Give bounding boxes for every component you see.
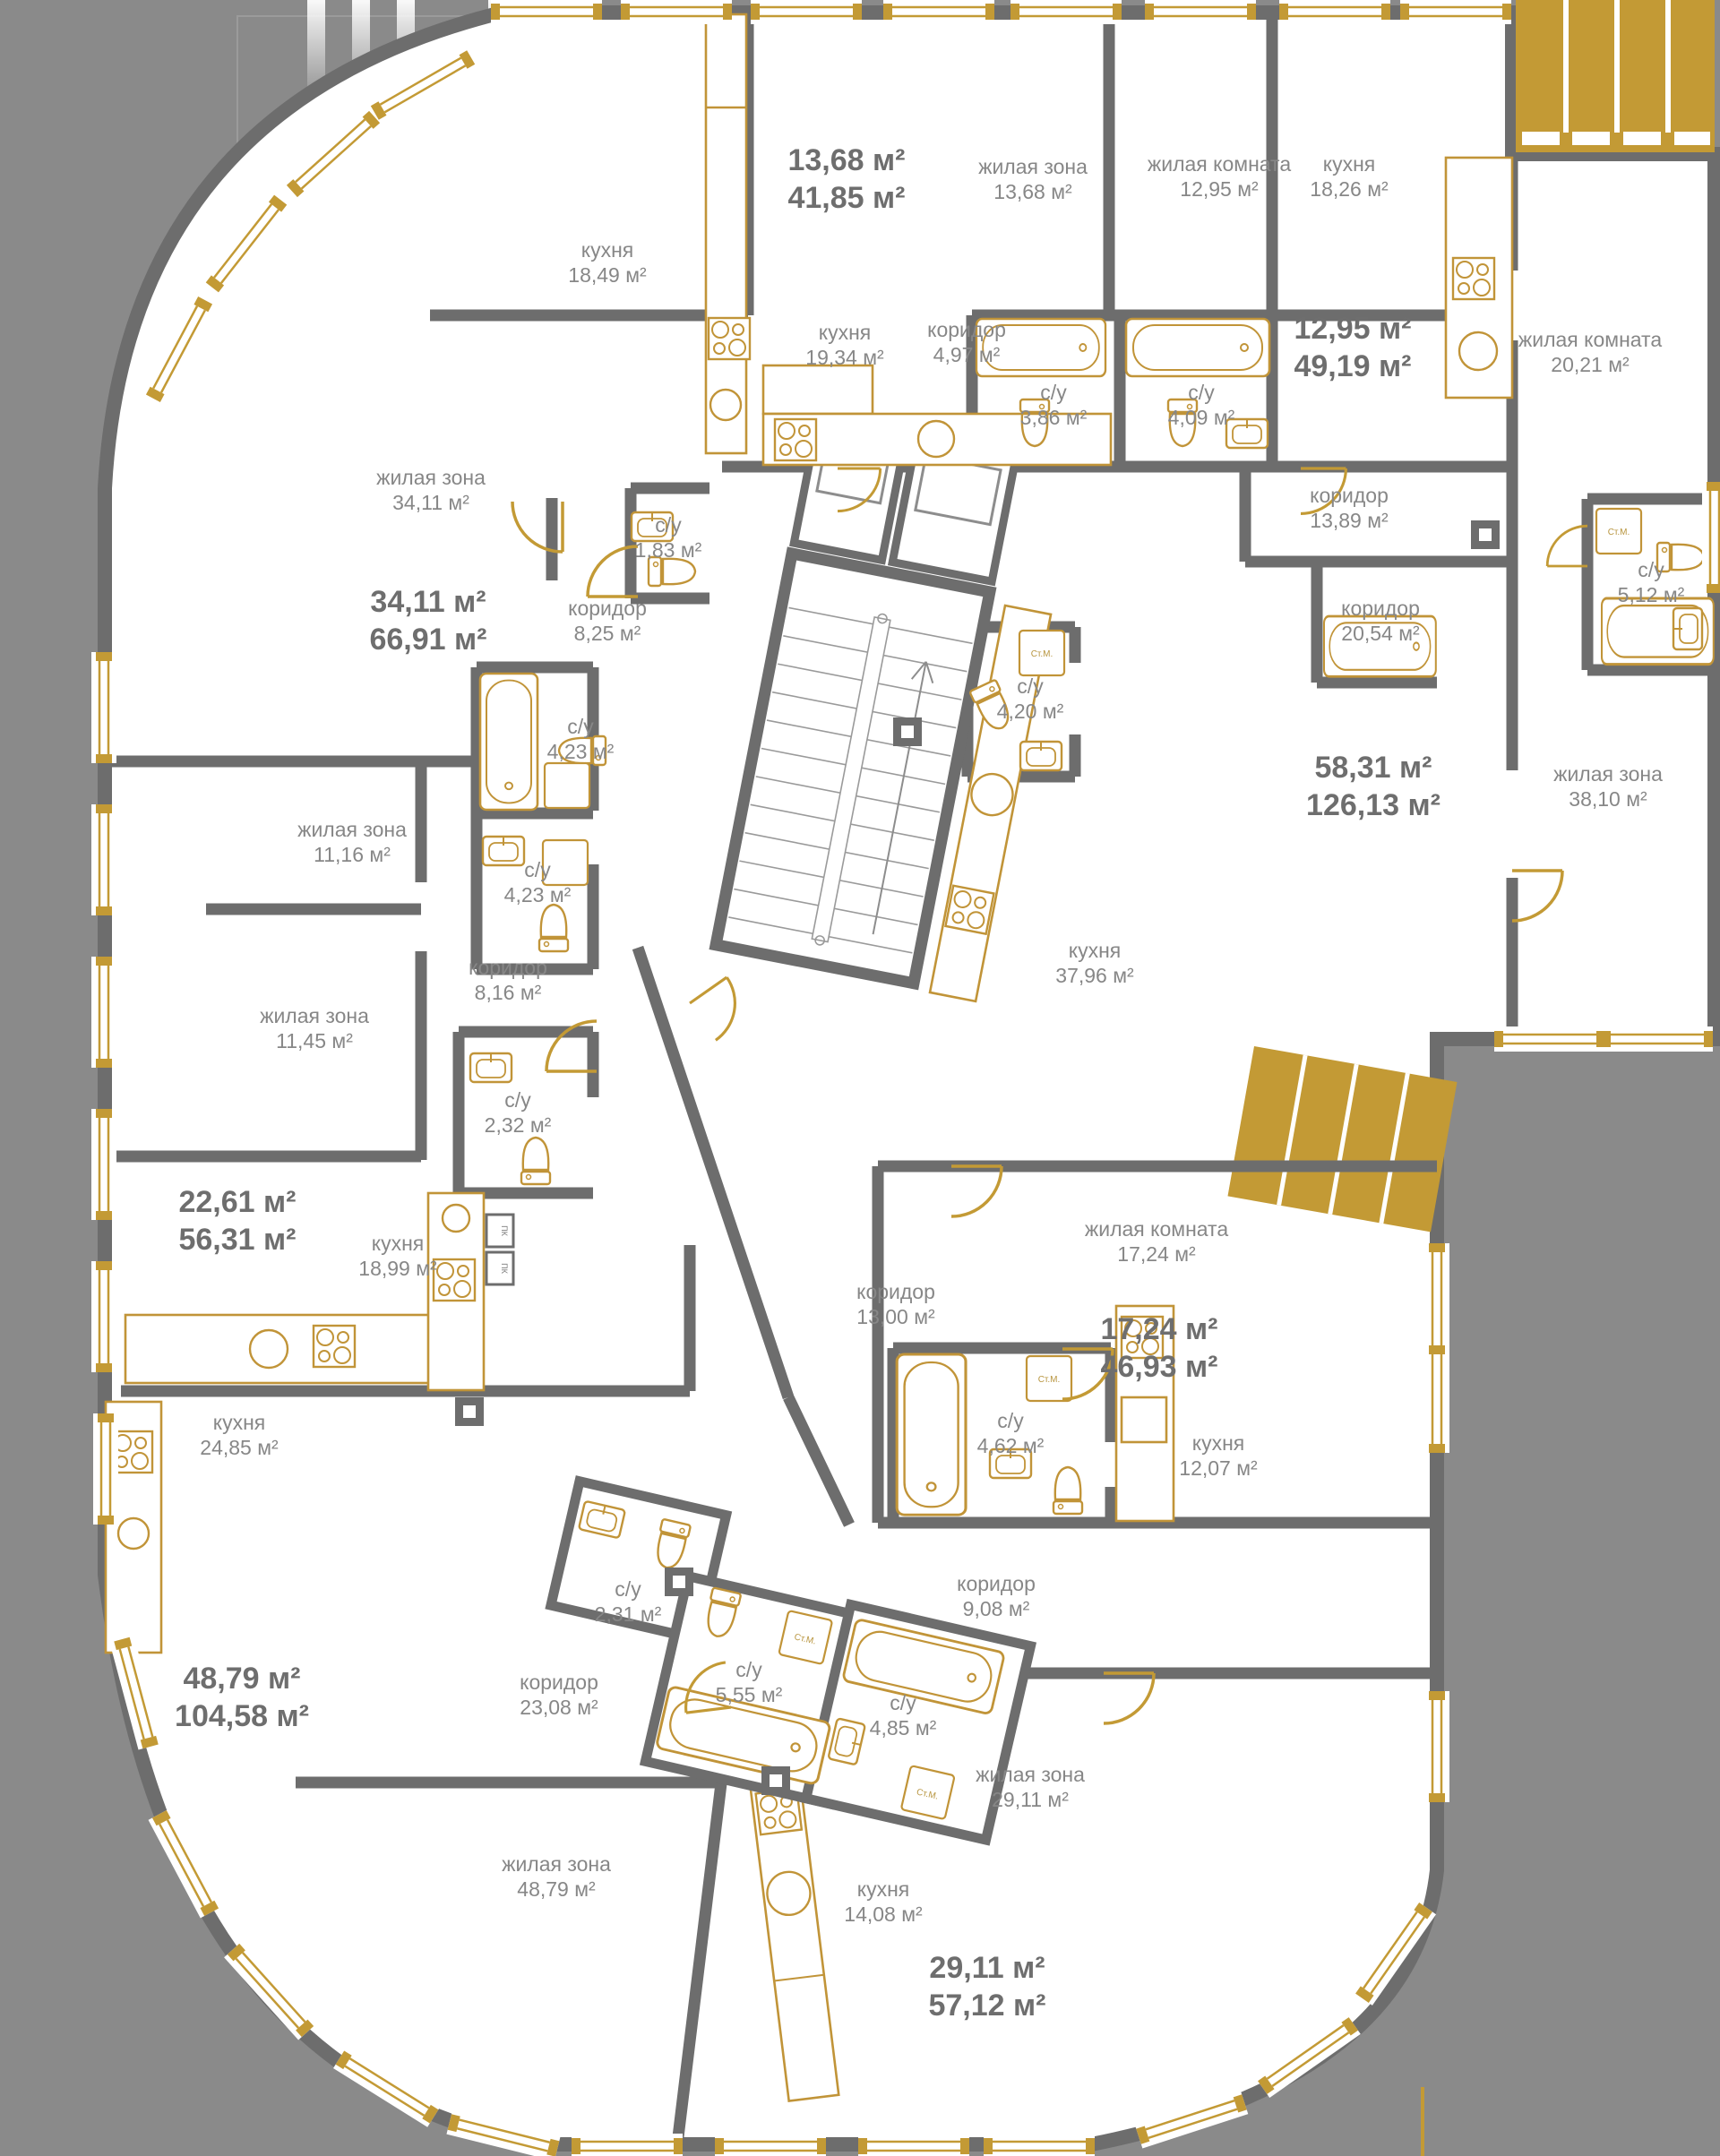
apartment-area-label: 29,11 м²57,12 м² bbox=[928, 1949, 1045, 2024]
room-label: с/у4,85 м² bbox=[870, 1690, 937, 1740]
apartment-area-label: 34,11 м²66,91 м² bbox=[369, 583, 486, 658]
room-label: коридор20,54 м² bbox=[1341, 596, 1420, 646]
room-label: с/у5,55 м² bbox=[716, 1657, 783, 1707]
room-label: с/у2,31 м² bbox=[595, 1576, 662, 1627]
room-label: жилая зона38,10 м² bbox=[1553, 761, 1663, 812]
room-label: жилая комната17,24 м² bbox=[1085, 1216, 1228, 1267]
apartment-area-label: 22,61 м²56,31 м² bbox=[178, 1183, 296, 1258]
room-label: жилая зона11,16 м² bbox=[297, 817, 407, 867]
room-label: коридор8,25 м² bbox=[568, 596, 647, 646]
room-label: кухня37,96 м² bbox=[1055, 938, 1133, 988]
apartment-area-label: 58,31 м²126,13 м² bbox=[1306, 749, 1440, 824]
duct-label: ПК bbox=[500, 1225, 509, 1236]
room-label: с/у4,20 м² bbox=[997, 674, 1064, 724]
room-label: коридор13,89 м² bbox=[1310, 483, 1389, 533]
room-label: кухня19,34 м² bbox=[805, 320, 883, 370]
floor-plan-canvas: Ст.М. Ст.М. Ст.М. Ст.М. Ст.М. ПК ПК bbox=[0, 0, 1720, 2156]
room-label: с/у4,23 м² bbox=[504, 857, 572, 907]
room-label: коридор9,08 м² bbox=[957, 1571, 1036, 1621]
room-label: жилая зона34,11 м² bbox=[376, 465, 486, 515]
room-label: с/у1,83 м² bbox=[635, 512, 702, 563]
room-label: кухня18,49 м² bbox=[568, 237, 646, 288]
room-label: кухня14,08 м² bbox=[844, 1877, 922, 1927]
balcony-top-right bbox=[1516, 0, 1715, 152]
room-label: коридор13,00 м² bbox=[856, 1279, 935, 1329]
duct-label: ПК bbox=[500, 1263, 509, 1274]
washer-label: Ст.М. bbox=[1031, 649, 1053, 659]
room-label: коридор8,16 м² bbox=[469, 955, 547, 1005]
room-label: жилая комната20,21 м² bbox=[1518, 327, 1662, 377]
room-label: с/у5,12 м² bbox=[1618, 557, 1685, 607]
room-label: с/у3,86 м² bbox=[1020, 380, 1088, 430]
room-label: с/у4,09 м² bbox=[1168, 380, 1235, 430]
washer-label: Ст.М. bbox=[1038, 1375, 1061, 1385]
room-label: с/у4,23 м² bbox=[547, 714, 615, 764]
room-label: жилая зона29,11 м² bbox=[976, 1762, 1085, 1812]
room-label: с/у2,32 м² bbox=[485, 1087, 552, 1138]
room-label: жилая зона13,68 м² bbox=[978, 154, 1088, 204]
washer-label: Ст.М. bbox=[1608, 528, 1630, 537]
apartment-area-label: 48,79 м²104,58 м² bbox=[175, 1660, 309, 1735]
room-label: коридор4,97 м² bbox=[927, 317, 1006, 367]
room-label: жилая комната12,95 м² bbox=[1148, 151, 1291, 202]
room-label: кухня18,99 м² bbox=[358, 1231, 436, 1281]
apartment-area-label: 13,68 м²41,85 м² bbox=[787, 142, 905, 217]
room-label: кухня12,07 м² bbox=[1179, 1430, 1257, 1481]
room-label: с/у4,62 м² bbox=[977, 1408, 1045, 1458]
room-label: жилая зона48,79 м² bbox=[502, 1851, 611, 1902]
room-label: жилая зона11,45 м² bbox=[260, 1003, 369, 1053]
room-label: кухня18,26 м² bbox=[1310, 151, 1388, 202]
apartment-area-label: 12,95 м²49,19 м² bbox=[1294, 310, 1411, 385]
room-label: коридор23,08 м² bbox=[520, 1670, 598, 1720]
room-label: кухня24,85 м² bbox=[200, 1410, 278, 1460]
apartment-area-label: 17,24 м²46,93 м² bbox=[1100, 1310, 1217, 1386]
